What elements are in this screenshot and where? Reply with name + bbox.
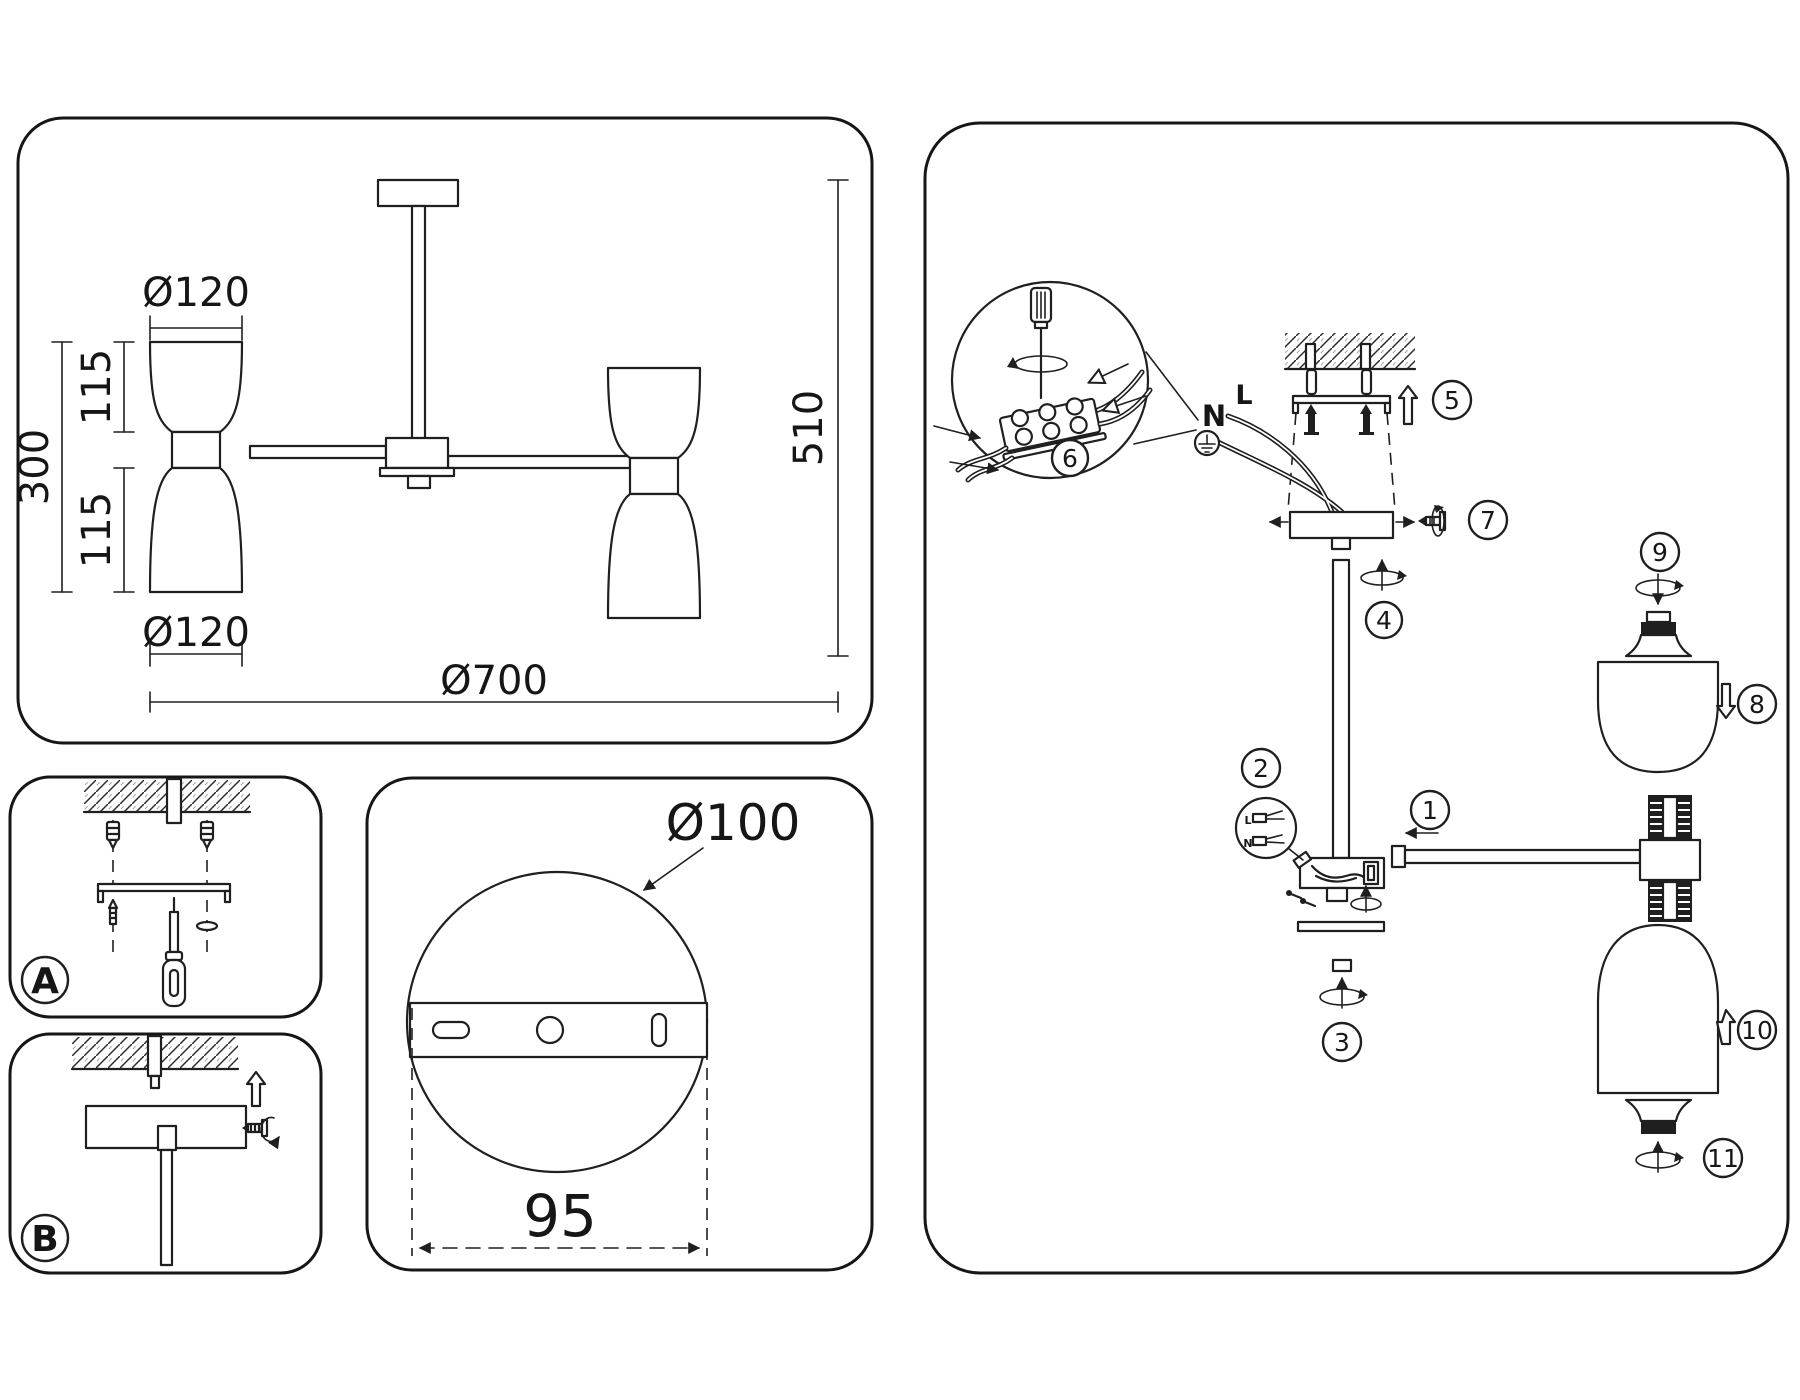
callout-2-number: 2 — [1253, 754, 1269, 783]
svg-text:N: N — [1243, 837, 1252, 850]
instruction-sheet: Ø120 115 300 115 Ø120 — [0, 0, 1800, 1400]
plate-diameter-label: Ø100 — [666, 794, 801, 852]
arm-right — [448, 456, 630, 468]
hole-spacing-label: 95 — [523, 1182, 597, 1250]
arm-thread-tip — [1392, 846, 1405, 867]
ceiling-hole — [1306, 344, 1315, 369]
center-hub — [386, 438, 448, 468]
slot-vertical — [652, 1014, 666, 1046]
lower-height-label: 115 — [74, 492, 120, 568]
ground-icon — [1195, 431, 1219, 455]
canopy-stem-socket — [158, 1126, 176, 1150]
screw-icon — [109, 900, 117, 924]
ceiling-stud — [167, 779, 181, 823]
assembly-panel: 5 N L — [925, 123, 1788, 1273]
block-body — [1640, 840, 1700, 880]
hub-nub — [408, 476, 430, 488]
template-panel: Ø100 95 — [367, 778, 872, 1270]
spec-panel: Ø120 115 300 115 Ø120 — [12, 118, 872, 743]
upper-shade — [1598, 662, 1718, 772]
wire-n-label: N — [1202, 399, 1226, 433]
callout-4-number: 4 — [1376, 606, 1392, 635]
step-a-panel: A — [10, 777, 321, 1017]
callout-7-number: 7 — [1480, 506, 1496, 535]
left-lower-shade — [150, 468, 242, 592]
callout-6-number: 6 — [1062, 444, 1078, 473]
dowel-pin — [1362, 370, 1371, 394]
fixture-diameter-label: Ø700 — [440, 658, 548, 704]
step-b-panel: B — [10, 1034, 321, 1273]
threaded-nub — [1327, 888, 1347, 901]
callout-9-number: 9 — [1652, 538, 1668, 567]
right-upper-shade — [608, 368, 700, 458]
svg-text:L: L — [1244, 814, 1251, 827]
ceiling-hatch — [1285, 333, 1415, 369]
step-b-letter: B — [31, 1219, 58, 1260]
right-lower-shade — [608, 494, 700, 618]
canopy — [1290, 512, 1393, 538]
stud-tip — [151, 1076, 159, 1088]
left-upper-shade — [150, 342, 242, 432]
stem-rod — [1333, 560, 1349, 858]
right-socket-block — [630, 458, 678, 494]
canopy-nub — [1332, 538, 1350, 549]
callout-5-number: 5 — [1444, 386, 1460, 415]
cover-plate — [1298, 922, 1384, 931]
lamp-arm — [1405, 850, 1640, 863]
callout-3-number: 3 — [1334, 1028, 1350, 1057]
upper-height-label: 115 — [74, 349, 120, 425]
fixture-height-label: 510 — [786, 390, 832, 466]
hub-plate — [380, 468, 454, 476]
callout-1-number: 1 — [1422, 796, 1438, 825]
stem-rod — [161, 1150, 172, 1265]
ceiling-hole — [1361, 344, 1370, 369]
lock-nut — [1333, 960, 1351, 971]
dowel-pin — [1307, 370, 1316, 394]
diagram-canvas: Ø120 115 300 115 Ø120 — [0, 0, 1800, 1400]
lower-shade — [1598, 925, 1718, 1093]
top-diameter-label: Ø120 — [142, 270, 250, 316]
step-a-letter: A — [31, 961, 59, 1002]
arm-left — [250, 446, 386, 458]
body-height-label: 300 — [12, 429, 58, 505]
slot-horizontal — [433, 1022, 469, 1038]
wire-l-label: L — [1235, 380, 1252, 411]
callout-8-number: 8 — [1749, 690, 1765, 719]
socket-block — [1640, 795, 1700, 922]
callout-11-number: 11 — [1707, 1144, 1739, 1173]
bottom-diameter-label: Ø120 — [142, 610, 250, 656]
washer-icon — [197, 922, 217, 930]
callout-10-number: 10 — [1741, 1016, 1773, 1045]
ceiling-plate — [378, 180, 458, 206]
center-hole — [537, 1017, 563, 1043]
ceiling-stud — [148, 1036, 161, 1076]
stem-rod — [412, 206, 425, 440]
left-socket-block — [172, 432, 220, 468]
